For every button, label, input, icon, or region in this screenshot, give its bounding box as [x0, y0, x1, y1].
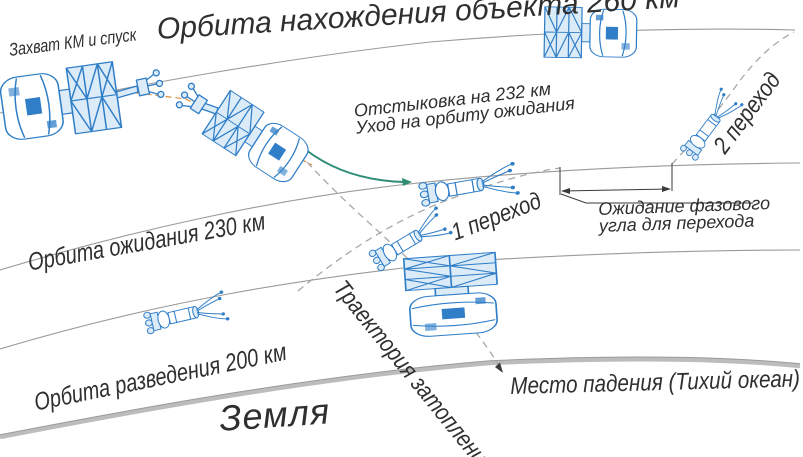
- undock-transfer-curve: [306, 150, 404, 182]
- phase-wait-label: Ожидание фазового угла для перехода: [598, 195, 771, 235]
- assembly-captured-icon: [0, 62, 165, 144]
- orbit-200-line: [0, 250, 800, 349]
- assembly-flooding-icon: [404, 252, 501, 337]
- mission-diagram: Орбита нахождения объекта 260 км Захват …: [0, 0, 803, 457]
- assembly-descending-icon: [174, 82, 313, 188]
- tug-separation-orbit-icon: [142, 290, 230, 339]
- spacecraft-layer: [0, 7, 744, 339]
- earth-label: Земля: [218, 392, 331, 437]
- undock-arrowhead: [402, 178, 412, 186]
- orbit-lines: [0, 29, 800, 349]
